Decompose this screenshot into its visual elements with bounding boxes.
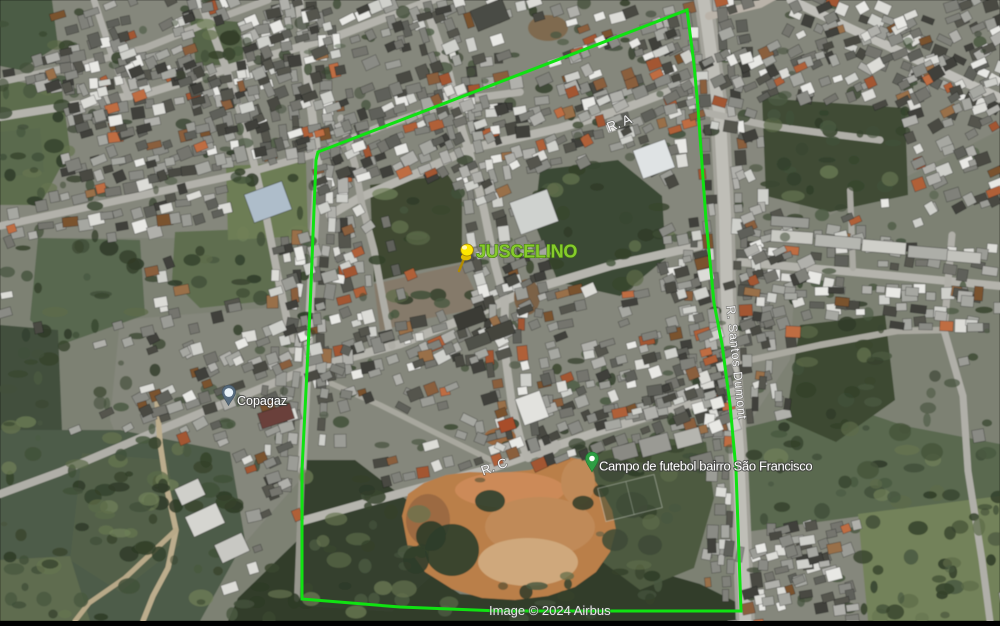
- svg-text:Image © 2024 Airbus: Image © 2024 Airbus: [489, 603, 611, 618]
- svg-text:Copagaz: Copagaz: [237, 394, 287, 408]
- svg-text:Campo de futebol bairro São Fr: Campo de futebol bairro São Francisco: [599, 459, 812, 474]
- svg-text:JUSCELINO: JUSCELINO: [476, 242, 577, 262]
